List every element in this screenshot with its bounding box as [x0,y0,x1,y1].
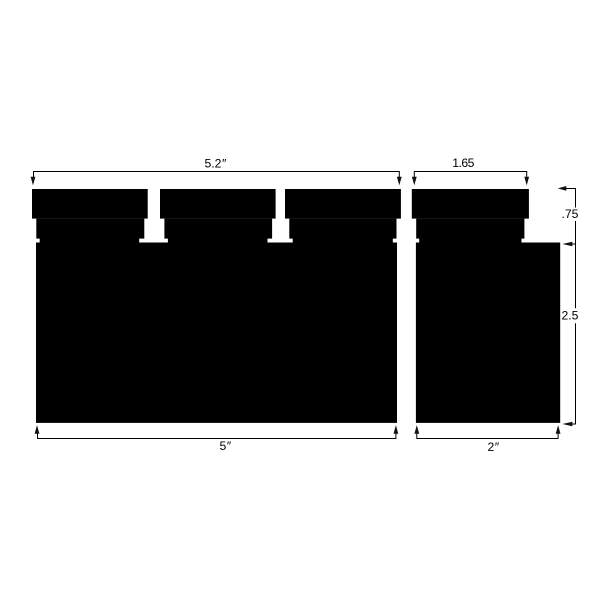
svg-text:5″: 5″ [220,439,232,453]
svg-text:2.5: 2.5 [562,309,579,323]
svg-text:5.2″: 5.2″ [205,157,227,171]
svg-text:.75: .75 [562,207,579,221]
svg-text:2″: 2″ [488,440,500,454]
svg-text:1.65: 1.65 [452,156,474,170]
